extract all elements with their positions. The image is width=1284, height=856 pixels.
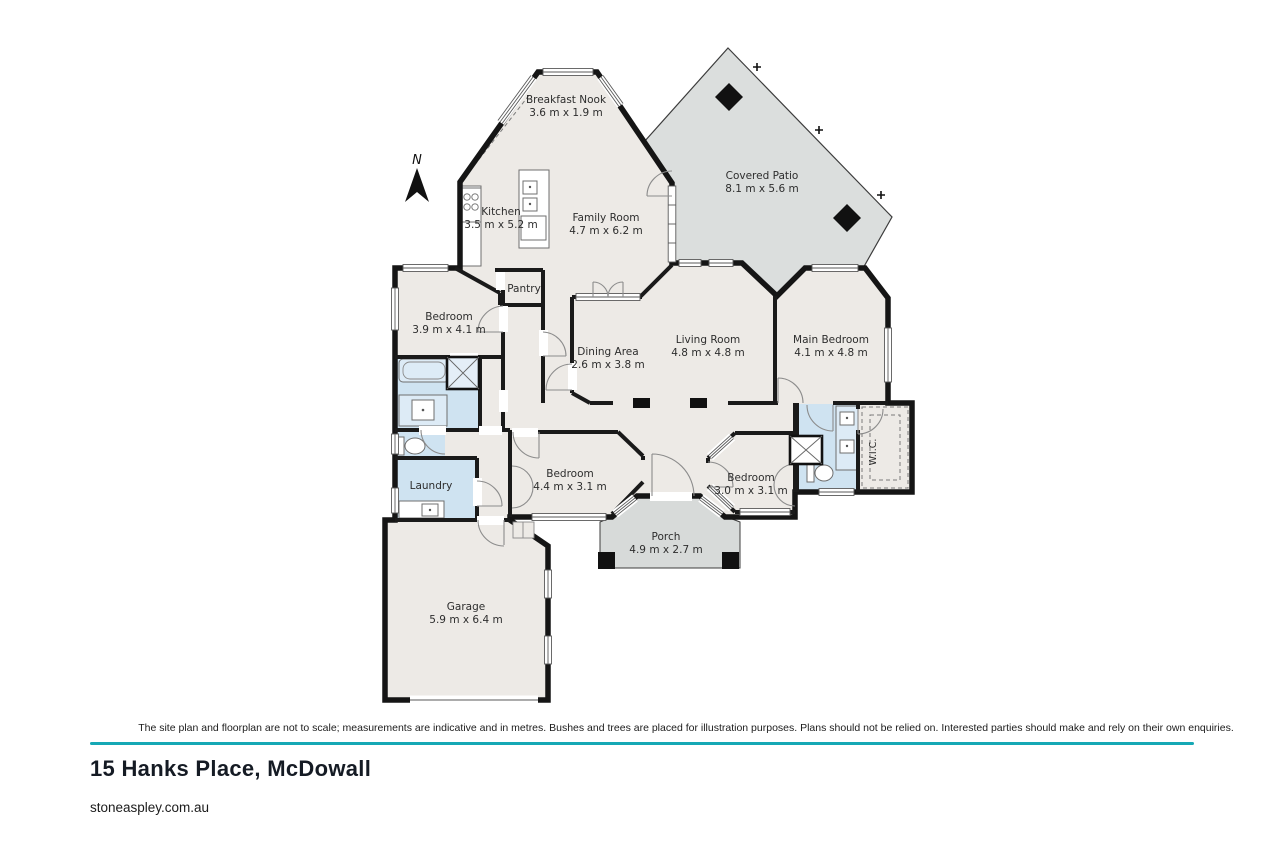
room-label-wic: W.I.C. [868, 439, 879, 466]
floorplan-canvas: N Breakfast Nook 3.6 m x 1.9 m Covered P… [0, 0, 1284, 745]
room-dims-bedroom-left: 3.9 m x 4.1 m [412, 324, 485, 336]
room-label-garage: Garage [447, 601, 485, 613]
room-dims-dining-area: 2.6 m x 3.8 m [571, 359, 644, 371]
room-label-living-room: Living Room [676, 334, 740, 346]
room-dims-porch: 4.9 m x 2.7 m [629, 544, 702, 556]
room-label-bedroom-left: Bedroom [425, 311, 473, 323]
room-label-covered-patio: Covered Patio [726, 170, 799, 182]
agency-website: stoneaspley.com.au [90, 800, 209, 815]
room-label-family-room: Family Room [572, 212, 639, 224]
room-label-pantry: Pantry [507, 283, 541, 295]
room-dims-main-bedroom: 4.1 m x 4.8 m [794, 347, 867, 359]
garage-step [513, 522, 534, 538]
floorplan-image: N Breakfast Nook 3.6 m x 1.9 m Covered P… [0, 0, 1284, 745]
room-dims-bedroom-right: 3.0 m x 3.1 m [714, 485, 787, 497]
room-label-breakfast-nook: Breakfast Nook [526, 94, 607, 106]
divider-line [90, 742, 1194, 745]
page: N Breakfast Nook 3.6 m x 1.9 m Covered P… [0, 0, 1284, 856]
wall-stub [690, 398, 707, 408]
room-label-kitchen: Kitchen [481, 206, 520, 218]
room-dims-breakfast-nook: 3.6 m x 1.9 m [529, 107, 602, 119]
room-label-dining-area: Dining Area [577, 346, 638, 358]
north-label: N [412, 153, 422, 168]
porch-post-icon [722, 552, 739, 569]
room-dims-covered-patio: 8.1 m x 5.6 m [725, 183, 798, 195]
porch-post-icon [598, 552, 615, 569]
room-label-laundry: Laundry [410, 480, 453, 492]
room-label-bedroom-right: Bedroom [727, 472, 775, 484]
room-dims-living-room: 4.8 m x 4.8 m [671, 347, 744, 359]
wall-stub [633, 398, 650, 408]
room-label-bedroom-middle: Bedroom [546, 468, 594, 480]
room-label-porch: Porch [652, 531, 681, 543]
room-dims-bedroom-middle: 4.4 m x 3.1 m [533, 481, 606, 493]
room-dims-kitchen: 3.5 m x 5.2 m [464, 219, 537, 231]
room-dims-garage: 5.9 m x 6.4 m [429, 614, 502, 626]
property-address: 15 Hanks Place, McDowall [90, 756, 371, 782]
north-arrow-icon: N [405, 153, 429, 202]
disclaimer-text: The site plan and floorplan are not to s… [0, 722, 1284, 734]
room-dims-family-room: 4.7 m x 6.2 m [569, 225, 642, 237]
room-label-main-bedroom: Main Bedroom [793, 334, 869, 346]
ensuite-toilet [807, 464, 814, 482]
